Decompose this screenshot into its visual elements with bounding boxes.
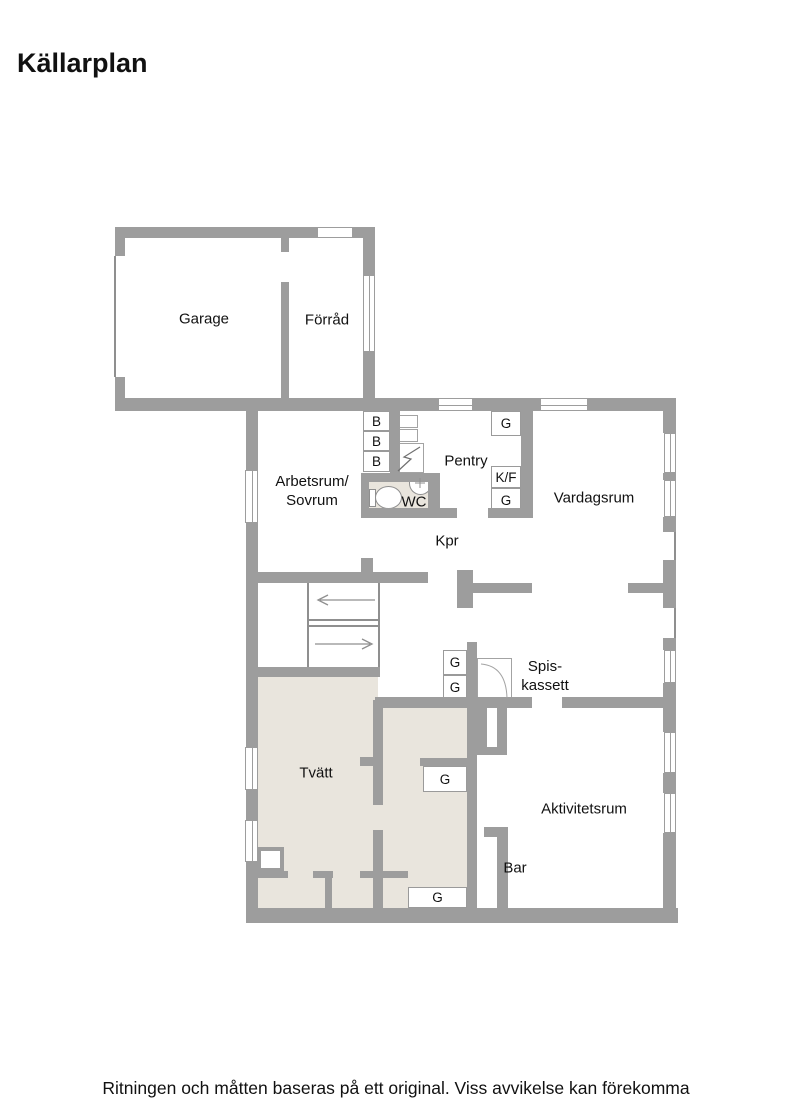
wall-segment: [473, 583, 532, 593]
wall-segment: [375, 697, 532, 708]
fridge-freezer-label: K/F: [495, 470, 516, 485]
window: [540, 398, 588, 411]
window: [363, 275, 375, 352]
bench-box: B: [363, 451, 390, 472]
cabinet-label: G: [440, 772, 451, 787]
wall-segment: [325, 878, 332, 908]
fridge-freezer-box: K/F: [491, 466, 521, 488]
floorplan-basement: Källarplan B B B G K/F G G G G G Garage …: [0, 0, 792, 1120]
room-label-pentry: Pentry: [444, 453, 487, 470]
bench-box: B: [363, 411, 390, 431]
wall-segment: [246, 790, 258, 820]
room-label-garage: Garage: [179, 311, 229, 328]
wall-segment: [663, 473, 676, 480]
window: [664, 732, 676, 773]
wall-segment: [440, 508, 457, 518]
wall-segment: [115, 227, 125, 256]
wall-segment: [246, 523, 258, 747]
wall-segment: [663, 638, 676, 650]
wall-segment: [473, 398, 540, 411]
room-label-spiskassett-line1: Spis-: [521, 657, 569, 676]
room-label-tvatt: Tvätt: [299, 765, 332, 782]
wet-room-floor: [378, 703, 472, 912]
disclaimer-text: Ritningen och måtten baseras på ett orig…: [102, 1078, 689, 1099]
wall-segment: [383, 871, 408, 878]
bench-label: B: [372, 414, 381, 429]
window: [664, 650, 676, 683]
window: [664, 433, 676, 473]
wall-segment: [497, 708, 507, 747]
cabinet-box: G: [443, 650, 467, 675]
wall-segment: [257, 871, 288, 878]
wall-segment: [663, 833, 676, 908]
wall-segment: [663, 411, 676, 433]
wall-segment: [663, 517, 676, 532]
wall-segment: [628, 583, 663, 593]
wall-segment: [281, 282, 289, 398]
wall-segment: [420, 758, 468, 766]
wall-segment: [487, 747, 507, 755]
cabinet-label: G: [450, 680, 461, 695]
wall-segment: [246, 411, 258, 470]
wall-segment: [373, 700, 383, 805]
wall-segment: [663, 560, 676, 608]
window: [664, 480, 676, 517]
thin-line: [114, 256, 116, 377]
thin-line: [308, 619, 380, 621]
wall-segment: [115, 227, 318, 238]
wall-segment: [246, 572, 428, 583]
stair-up-arrow-icon: [318, 595, 375, 605]
fireplace-insert-box: [477, 658, 512, 700]
wall-segment: [257, 667, 380, 677]
cabinet-label: G: [450, 655, 461, 670]
room-label-forrad: Förråd: [305, 312, 349, 329]
cabinet-label: G: [501, 493, 512, 508]
wall-segment: [521, 411, 533, 518]
wall-opening: [318, 227, 352, 238]
wall-segment: [246, 908, 678, 923]
room-label-arbetsrum-line1: Arbetsrum/: [275, 472, 348, 491]
room-label-spiskassett-line2: kassett: [521, 676, 569, 695]
room-label-vardagsrum: Vardagsrum: [554, 490, 635, 507]
thin-line: [308, 625, 380, 627]
wall-segment: [477, 708, 487, 755]
wall-segment: [484, 827, 508, 837]
wall-segment: [428, 473, 440, 518]
bench-label: B: [372, 434, 381, 449]
wall-segment: [361, 558, 373, 572]
room-label-kpr: Kpr: [435, 533, 458, 550]
floor-drain-icon: [257, 847, 284, 872]
wall-segment: [588, 398, 676, 411]
window: [245, 470, 258, 523]
room-label-spiskassett: Spis- kassett: [521, 657, 569, 695]
wall-segment: [363, 352, 375, 398]
window: [245, 820, 258, 862]
thin-line: [674, 532, 676, 560]
room-label-aktivitetsrum: Aktivitetsrum: [541, 801, 627, 818]
window: [438, 398, 473, 411]
wall-segment: [390, 411, 400, 473]
stair-down-arrow-icon: [315, 639, 372, 649]
wall-segment: [467, 642, 477, 908]
thin-line: [674, 608, 676, 638]
toilet-bowl-icon: [375, 486, 402, 509]
wall-segment: [115, 398, 378, 411]
wall-segment: [378, 398, 438, 411]
wall-segment: [373, 830, 383, 908]
pentry-sink-basin-icon: [399, 429, 418, 442]
page-title: Källarplan: [17, 48, 148, 79]
cabinet-label: G: [501, 416, 512, 431]
window: [245, 747, 258, 790]
wall-segment: [360, 757, 374, 766]
wall-segment: [281, 238, 289, 252]
cabinet-box: G: [491, 411, 521, 436]
wall-segment: [115, 377, 125, 400]
room-label-bar: Bar: [503, 860, 526, 877]
wall-segment: [360, 871, 374, 878]
wall-segment: [562, 697, 665, 708]
wall-segment: [246, 862, 258, 908]
wall-segment: [363, 227, 375, 275]
cabinet-box: G: [423, 766, 467, 792]
window: [664, 793, 676, 833]
pentry-sink-basin-icon: [399, 415, 418, 428]
room-label-arbetsrum-line2: Sovrum: [275, 491, 348, 510]
room-label-wc: WC: [402, 494, 427, 511]
room-label-arbetsrum-sovrum: Arbetsrum/ Sovrum: [275, 472, 348, 510]
cabinet-box: G: [408, 887, 467, 908]
wall-segment: [313, 871, 333, 878]
bench-box: B: [363, 431, 390, 451]
bench-label: B: [372, 454, 381, 469]
wall-segment: [663, 773, 676, 793]
cabinet-label: G: [432, 890, 443, 905]
wall-segment: [488, 508, 521, 518]
zigzag-symbol-box: [398, 443, 424, 473]
wall-segment: [457, 570, 473, 608]
